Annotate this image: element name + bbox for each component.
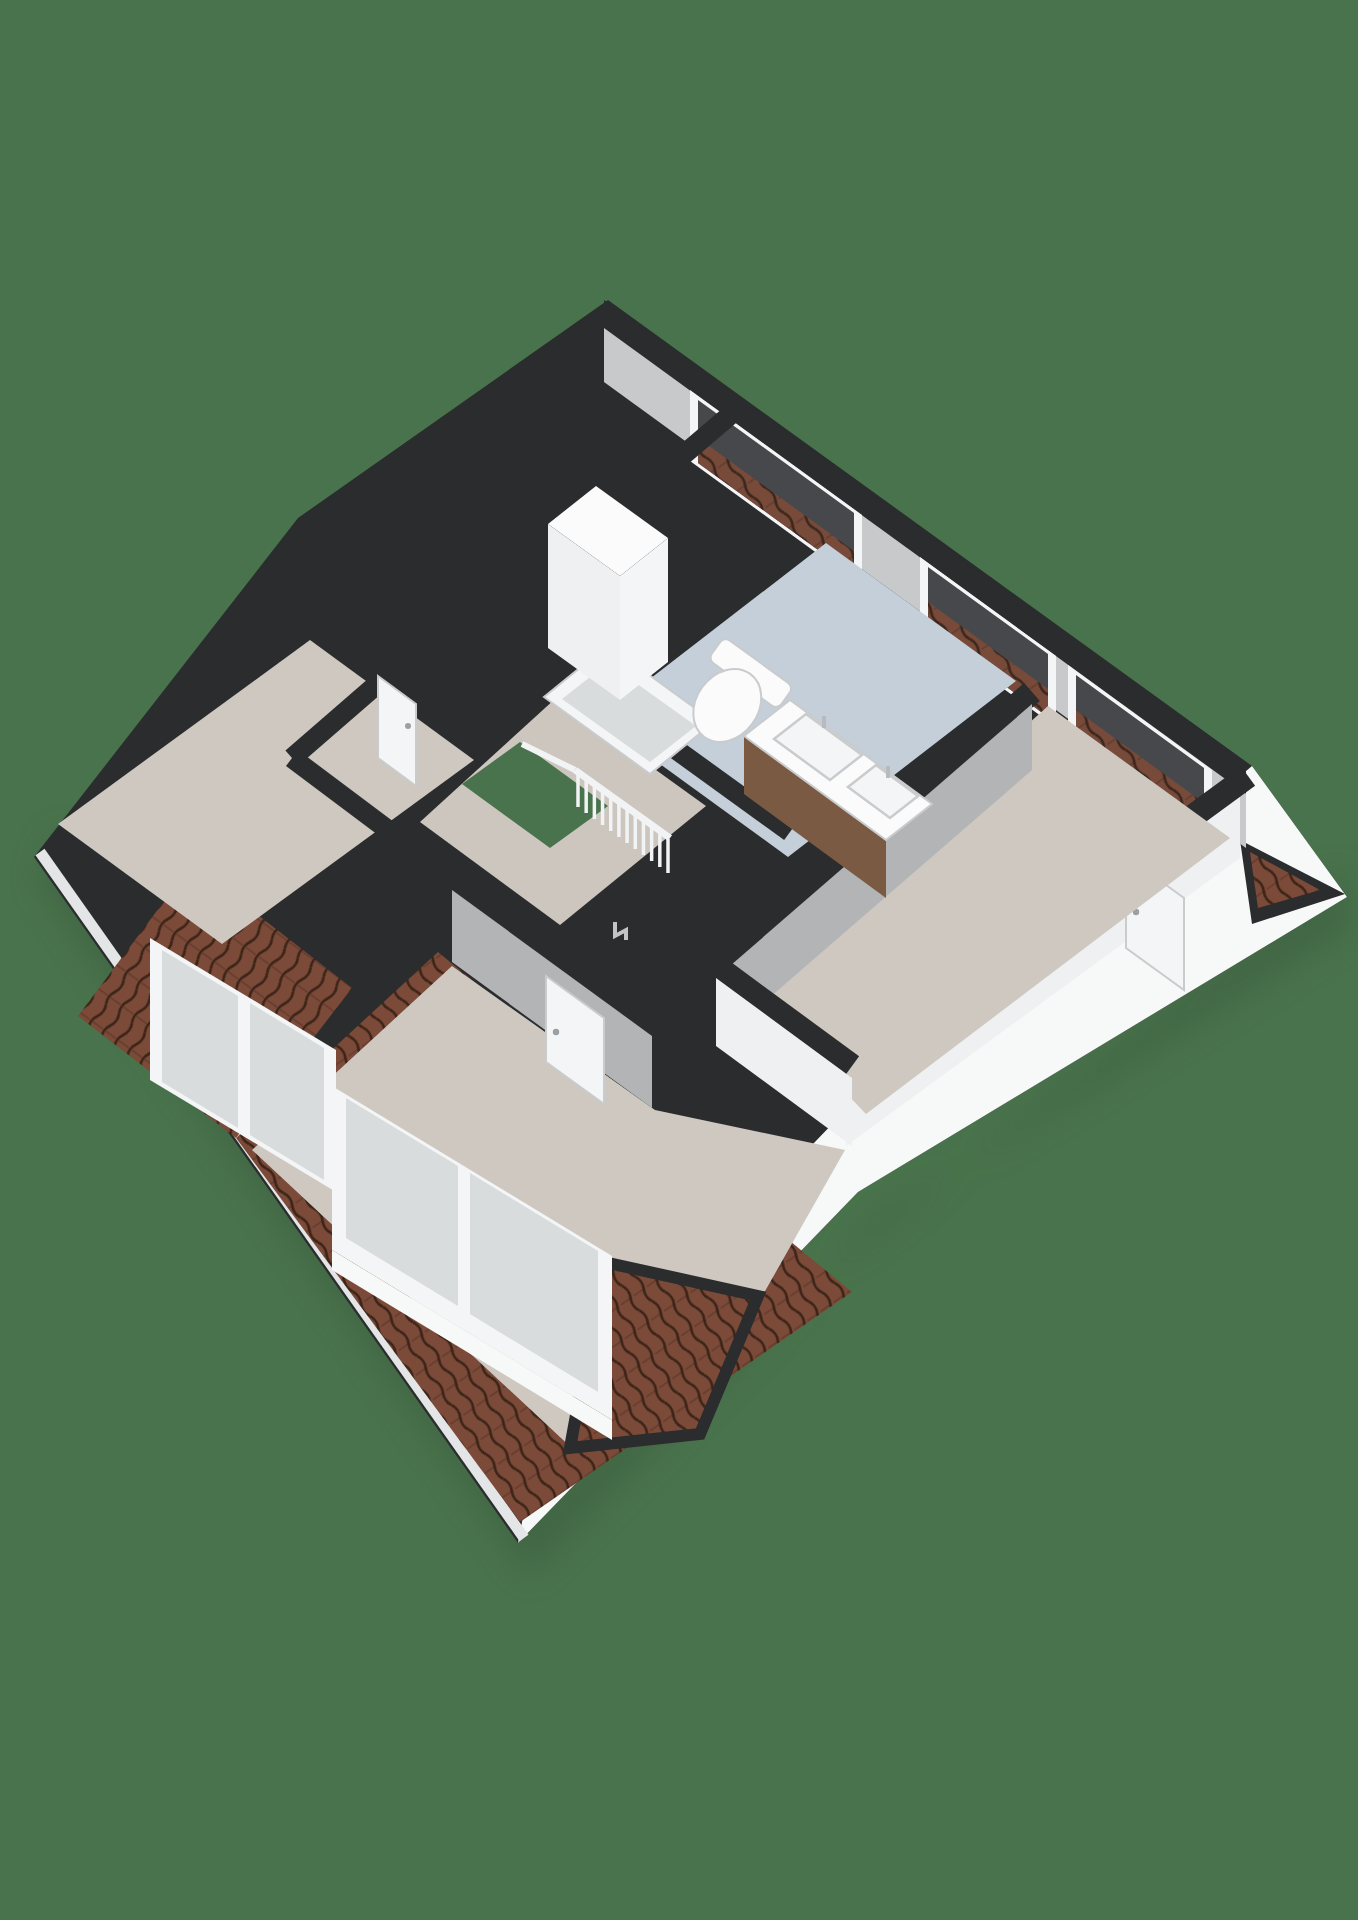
floorplan-3d-render	[0, 0, 1358, 1920]
door-handle	[405, 723, 411, 729]
door-handle	[553, 1029, 559, 1035]
